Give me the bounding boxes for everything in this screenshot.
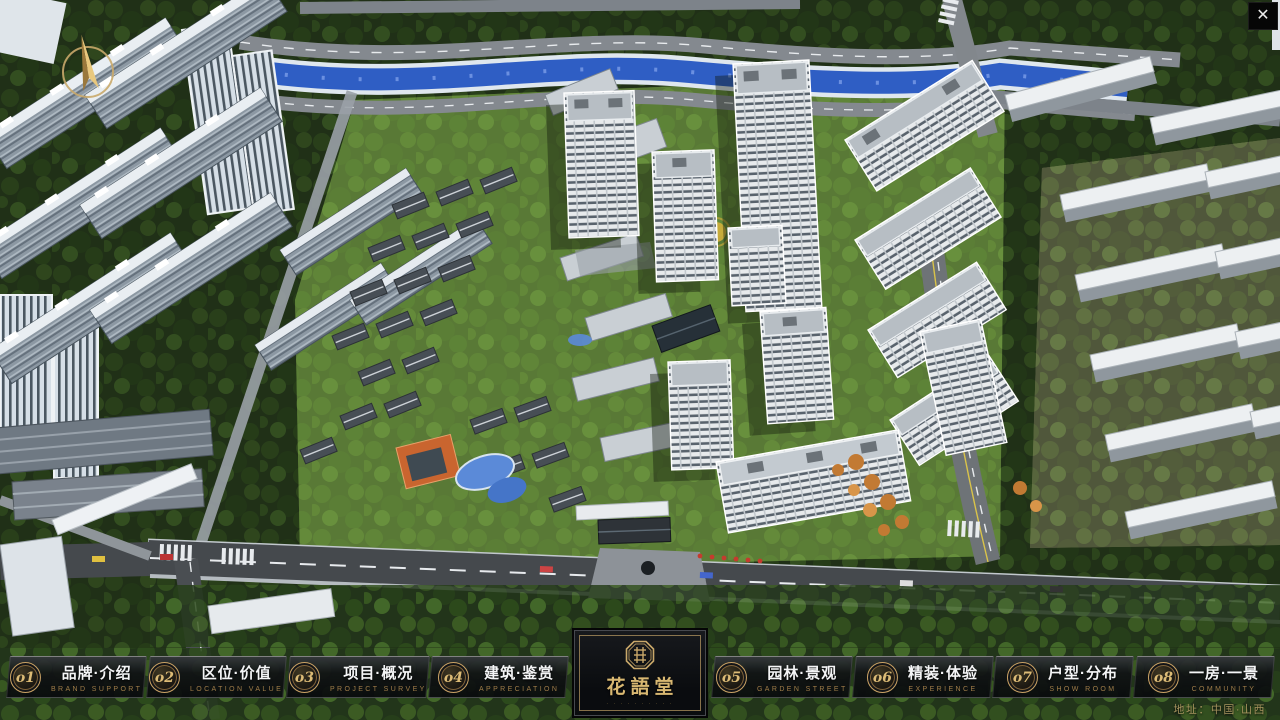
nav-item-text: 品牌·介绍 BRAND SUPPORT xyxy=(51,662,142,693)
nav-number-badge: o5 xyxy=(716,662,747,693)
nav-item-content: o4 建筑·鉴赏 APPRECIATION xyxy=(438,662,559,693)
nav-item-title: 户型·分布 xyxy=(1048,662,1118,683)
nav-item-text: 精装·体验 EXPERIENCE xyxy=(908,662,978,693)
nav-item-subtitle: LOCATION VALUE xyxy=(190,686,283,693)
nav-item-title: 项目·概况 xyxy=(343,662,413,683)
nav-item-title: 一房·一景 xyxy=(1189,662,1259,683)
nav-number-badge: o1 xyxy=(10,662,41,693)
nav-item-text: 建筑·鉴赏 APPRECIATION xyxy=(479,662,559,693)
brand-logo-panel: 花語堂 · · · · · · · · · · xyxy=(574,630,706,716)
nav-item-title: 园林·景观 xyxy=(767,662,837,683)
nav-item-content: o8 一房·一景 COMMUNITY xyxy=(1148,662,1259,693)
nav-number-badge: o3 xyxy=(289,662,320,693)
brand-caption: · · · · · · · · · · xyxy=(606,701,673,707)
nav-number-badge: o6 xyxy=(867,662,898,693)
nav-item-content: o5 园林·景观 GARDEN STREET xyxy=(716,662,848,693)
nav-item-subtitle: APPRECIATION xyxy=(479,686,559,693)
nav-item-content: o2 区位·价值 LOCATION VALUE xyxy=(149,662,283,693)
nav-item-subtitle: BRAND SUPPORT xyxy=(51,686,142,693)
nav-item-project[interactable]: o3 项目·概况 PROJECT SURVEY xyxy=(286,656,429,698)
sales-presentation-screen: ✕ o1 品牌·介绍 BRAND SUPPORT o2 区位·价值 xyxy=(0,0,1280,720)
nav-number-badge: o7 xyxy=(1007,662,1038,693)
nav-item-floorplan[interactable]: o7 户型·分布 SHOW ROOM xyxy=(992,656,1133,698)
nav-item-text: 区位·价值 LOCATION VALUE xyxy=(190,662,283,693)
close-button[interactable]: ✕ xyxy=(1248,2,1278,30)
nav-item-subtitle: PROJECT SURVEY xyxy=(330,686,427,693)
nav-number-badge: o8 xyxy=(1148,662,1179,693)
nav-item-subtitle: COMMUNITY xyxy=(1191,686,1256,693)
nav-item-location[interactable]: o2 区位·价值 LOCATION VALUE xyxy=(146,656,286,698)
nav-item-title: 建筑·鉴赏 xyxy=(484,662,554,683)
nav-number-badge: o4 xyxy=(438,662,469,693)
masterplan-map xyxy=(0,0,1280,720)
nav-item-title: 品牌·介绍 xyxy=(62,662,132,683)
brand-logo-frame: 花語堂 · · · · · · · · · · xyxy=(579,635,701,711)
nav-group-left: o1 品牌·介绍 BRAND SUPPORT o2 区位·价值 LOCATION… xyxy=(0,656,573,698)
nav-item-content: o1 品牌·介绍 BRAND SUPPORT xyxy=(10,662,142,693)
nav-item-subtitle: SHOW ROOM xyxy=(1050,686,1117,693)
nav-item-garden[interactable]: o5 园林·景观 GARDEN STREET xyxy=(711,656,852,698)
nav-item-community[interactable]: o8 一房·一景 COMMUNITY xyxy=(1133,656,1274,698)
nav-item-content: o6 精装·体验 EXPERIENCE xyxy=(867,662,978,693)
project-address: 地址：中国·山西 xyxy=(1173,701,1266,717)
nav-item-title: 精装·体验 xyxy=(908,662,978,683)
brand-name: 花語堂 xyxy=(601,672,678,699)
brand-seal-icon xyxy=(625,640,655,670)
nav-item-interior[interactable]: o6 精装·体验 EXPERIENCE xyxy=(852,656,993,698)
nav-item-text: 园林·景观 GARDEN STREET xyxy=(757,662,848,693)
nav-item-brand[interactable]: o1 品牌·介绍 BRAND SUPPORT xyxy=(6,656,146,698)
nav-item-text: 户型·分布 SHOW ROOM xyxy=(1048,662,1118,693)
nav-group-right: o5 园林·景观 GARDEN STREET o6 精装·体验 EXPERIEN… xyxy=(707,656,1280,698)
nav-item-subtitle: GARDEN STREET xyxy=(757,686,848,693)
nav-item-title: 区位·价值 xyxy=(202,662,272,683)
nav-item-text: 项目·概况 PROJECT SURVEY xyxy=(330,662,427,693)
nav-item-content: o7 户型·分布 SHOW ROOM xyxy=(1007,662,1118,693)
nav-item-subtitle: EXPERIENCE xyxy=(908,686,977,693)
nav-item-architecture[interactable]: o4 建筑·鉴赏 APPRECIATION xyxy=(428,656,568,698)
nav-item-text: 一房·一景 COMMUNITY xyxy=(1189,662,1259,693)
close-icon: ✕ xyxy=(1256,8,1269,24)
nav-item-content: o3 项目·概况 PROJECT SURVEY xyxy=(289,662,427,693)
nav-number-badge: o2 xyxy=(149,662,180,693)
